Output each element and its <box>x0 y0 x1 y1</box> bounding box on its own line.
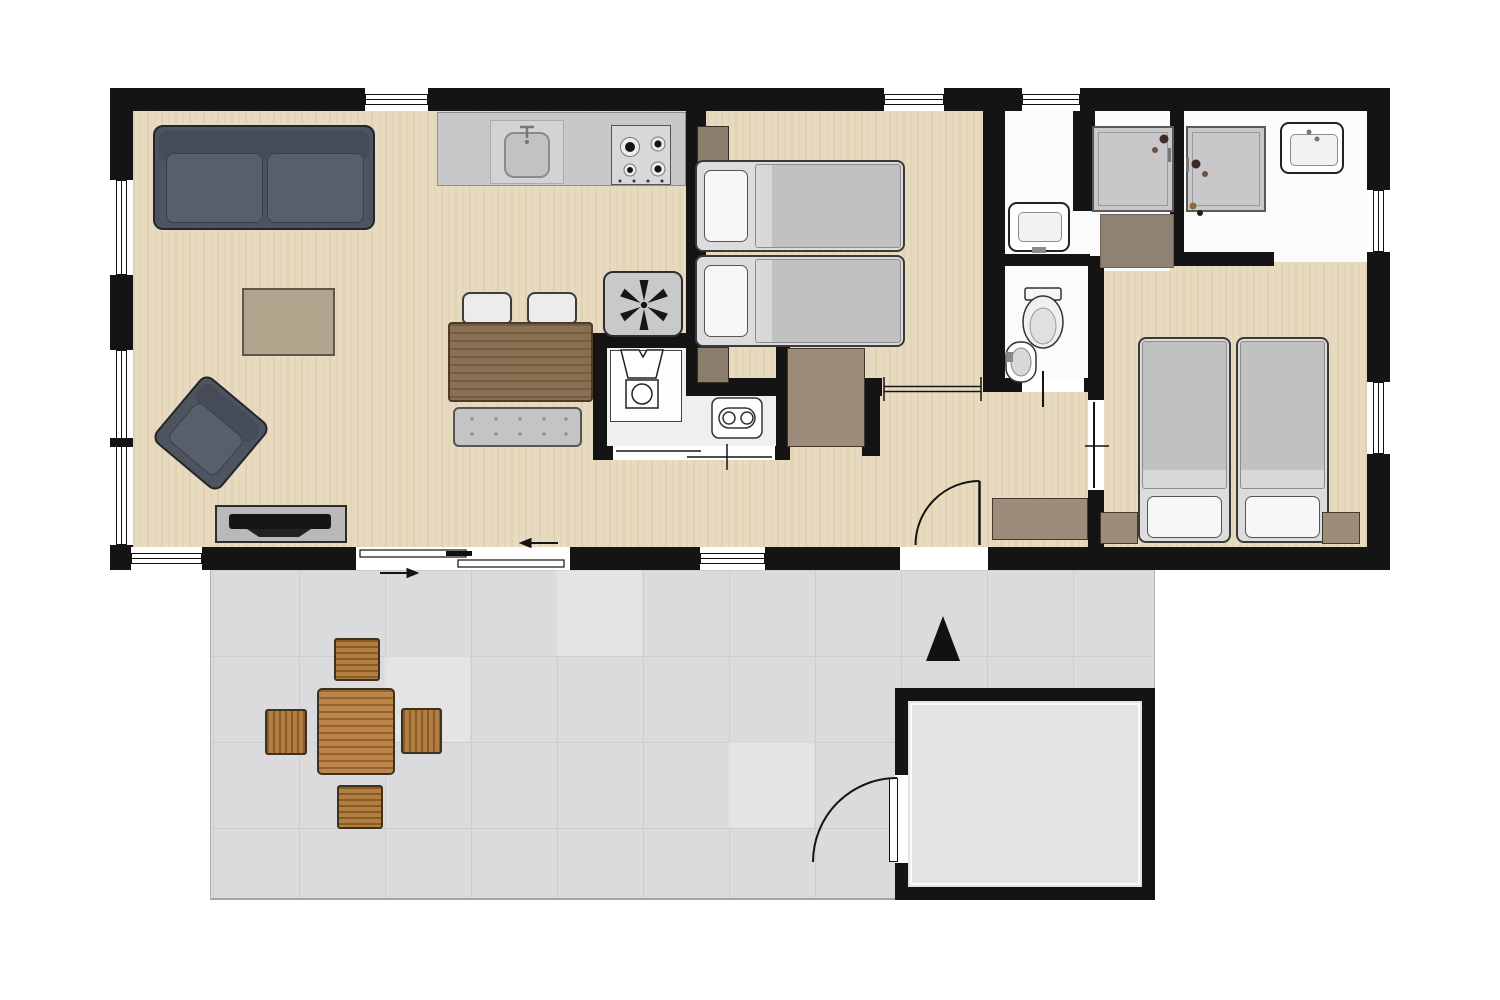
single-bed <box>1138 337 1231 543</box>
dining-bench <box>453 407 582 447</box>
bed-blanket <box>1240 341 1325 489</box>
washbasin-bowl <box>1290 134 1338 166</box>
stove <box>611 125 671 185</box>
sofa-cushion <box>166 153 263 223</box>
bedroom2-sliding-door-opening <box>1088 400 1104 490</box>
bed-pillow <box>1147 496 1222 538</box>
window <box>110 180 133 275</box>
nightstand <box>1100 512 1138 544</box>
coffee-table <box>242 288 335 356</box>
terrace-tile <box>728 742 814 828</box>
closet-sliding-door-opening <box>613 446 775 460</box>
interior-wall <box>983 111 1005 392</box>
outdoor-table <box>317 688 395 775</box>
window <box>131 547 202 570</box>
shed-door-leaf <box>889 778 898 862</box>
window <box>700 547 765 570</box>
terrace-tile <box>556 570 642 656</box>
entry-cabinet <box>992 498 1088 540</box>
bed-blanket <box>1142 341 1227 489</box>
window-mullion <box>110 438 133 447</box>
bed-pillow <box>704 265 748 337</box>
single-bed <box>695 160 905 252</box>
window <box>884 88 944 111</box>
outdoor-chair <box>337 785 383 829</box>
window <box>1367 382 1390 454</box>
nightstand <box>697 126 729 162</box>
outdoor-chair <box>401 708 442 754</box>
washbasin-bowl <box>1018 212 1062 242</box>
bed-blanket <box>755 259 901 343</box>
washbasin <box>1008 202 1070 252</box>
outdoor-chair <box>265 709 307 755</box>
dining-chair <box>527 292 577 324</box>
shed <box>895 688 1155 900</box>
sofa-cushion <box>267 153 364 223</box>
tv-cabinet <box>215 505 347 543</box>
interior-wall <box>1088 256 1104 392</box>
sofa <box>153 125 375 230</box>
toilet-door-opening <box>1022 378 1084 392</box>
single-bed <box>1236 337 1329 543</box>
shower-tray <box>1092 126 1174 212</box>
bed-pillow <box>1245 496 1320 538</box>
sliding-patio-door <box>356 547 570 570</box>
window <box>365 88 428 111</box>
interior-wall <box>593 333 607 460</box>
nightstand <box>697 347 729 383</box>
bed-blanket <box>755 164 901 248</box>
dining-chair <box>462 292 512 324</box>
shower-tray <box>1186 126 1266 212</box>
window <box>1022 88 1080 111</box>
heater-fan-unit <box>603 271 683 337</box>
dining-table <box>448 322 593 402</box>
outdoor-chair <box>334 638 380 681</box>
kitchen-sink <box>504 132 550 178</box>
interior-wall <box>1005 254 1090 266</box>
floor-plan <box>0 0 1500 1000</box>
shed-floor <box>910 703 1140 885</box>
bed-pillow <box>704 170 748 242</box>
entry-door-opening <box>900 547 988 570</box>
washbasin <box>1280 122 1344 174</box>
window <box>1367 190 1390 252</box>
nightstand <box>1322 512 1360 544</box>
window <box>110 350 133 545</box>
washing-machine <box>610 350 682 422</box>
single-bed <box>695 255 905 347</box>
shower-mat-cabinet <box>1100 214 1174 268</box>
hall-wardrobe <box>787 348 865 447</box>
interior-wall <box>1170 252 1274 266</box>
